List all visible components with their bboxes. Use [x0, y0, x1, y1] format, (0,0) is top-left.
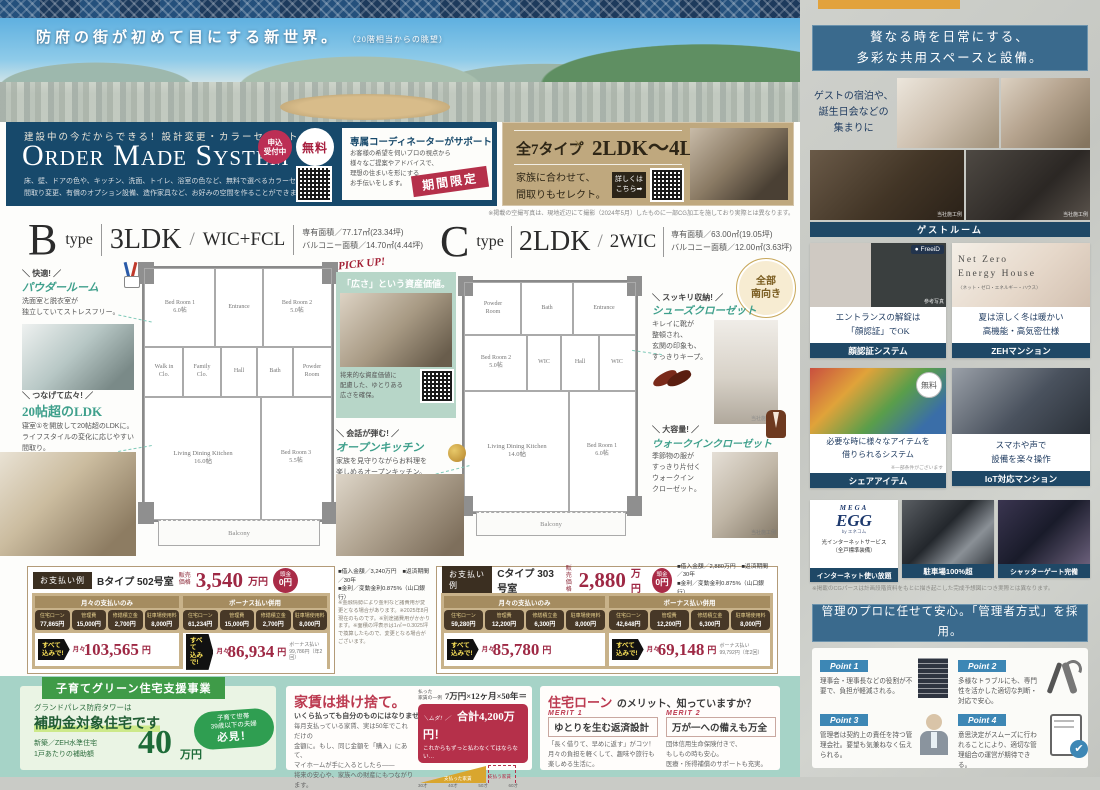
- price-value: 2,880: [579, 570, 626, 591]
- pickup-body: 将来的な資産価値に 配慮した、ゆとりある 広さを確保。: [340, 371, 419, 401]
- powder-body: 洗面室と脱衣室が 独立していてストレスフリー。: [22, 297, 140, 319]
- future-label: 支払う家賃: [488, 774, 511, 780]
- iot-caption: IoT対応マンション: [952, 471, 1090, 486]
- total-value: 103,565: [84, 641, 139, 658]
- all-in-chip: すべて 込みで!: [612, 639, 644, 660]
- type-lineup-box: 全7タイプ × 2LDK〜4LDK 家族に合わせて、 間取りもセレクト。 詳しく…: [502, 122, 794, 206]
- btype-sep: /: [189, 229, 194, 251]
- toothbrush-icon: [124, 262, 144, 288]
- free-badge: 無料: [296, 128, 334, 166]
- all-in-chip: すべて 込みで!: [38, 639, 70, 660]
- chip-value: 6,300円: [691, 619, 730, 628]
- room-bath: Bath: [256, 346, 294, 398]
- share-item-text: 必要な時に様々なアイテムを 借りられるシステム: [810, 434, 946, 464]
- total-yen: 円: [277, 645, 286, 658]
- payment-col-monthly: 月々の支払いのみ 住宅ローン77,865円 管理費15,000円 修繕積立金2,…: [35, 596, 179, 666]
- chip-value: 6,300円: [526, 619, 565, 628]
- divider: [663, 227, 664, 257]
- loan-merit-box: 住宅ローン のメリット、知っていますか？ MERIT 1 ゆとりを生む返済設計 …: [540, 686, 780, 770]
- cg-disclaimer: ※掲載のCGパースは計画段階資料をもとに描き起こした完成予想図につき実際とは異な…: [812, 584, 1088, 592]
- photo-note: 参考写真: [924, 298, 944, 305]
- cost-chip: 修繕積立金2,700円: [108, 610, 143, 630]
- divider: [293, 225, 294, 255]
- ldk-annotation: ＼ つなげて広々! ／ 20帖超のLDK 寝室①を開放して20帖超のLDKに。 …: [22, 390, 150, 455]
- tick: 40才: [448, 783, 458, 789]
- cost-chip: 住宅ローン61,234円: [183, 610, 218, 630]
- order-made-section: 建設中の今だからできる！設計変更・カラーセレクト Order Made Syst…: [6, 122, 497, 206]
- price-label: 販売 価格: [179, 573, 191, 587]
- parking-caption: 駐車場100%超: [902, 564, 994, 578]
- payment-box-b: お支払い例 Bタイプ 502号室 販売 価格 3,540 万円 頭金 0円 月々…: [27, 566, 335, 674]
- share-item-caption: シェアアイテム: [810, 473, 946, 488]
- no-downpayment-badge: 頭金 0円: [652, 568, 672, 593]
- total-yen: 円: [542, 643, 551, 656]
- megaegg-logo: MEGA EGG by エネコム 光インターネットサービス （全戸標準装備）: [810, 500, 898, 568]
- face-id-text: エントランスの解錠は 「顔認証」でOK: [810, 307, 946, 343]
- pillar: [138, 502, 154, 524]
- room-fcl: Family Clo.: [182, 346, 222, 398]
- rent-box: 家賃は掛け捨て。 いくら払っても自分のものにはなりません。 毎月支払っている家賃…: [286, 686, 532, 770]
- cost-chip: 駐車場使用料8,000円: [566, 610, 605, 630]
- chip-label: 管理費: [650, 612, 689, 619]
- payment-col-bonus: ボーナス払い併用 住宅ローン61,234円 管理費15,000円 修繕積立金2,…: [183, 596, 327, 666]
- all-in-chip: すべて 込みで!: [447, 639, 479, 660]
- subsidy-box: 子育てグリーン住宅支援事業 グランドパレス防府タワーは 補助金対象住宅です 新築…: [20, 686, 276, 770]
- bubble-em: 必見！: [217, 729, 252, 745]
- guest-photo-bedroom: 当社施工例: [966, 150, 1090, 220]
- kitchen-flag: ＼ 会話が弾む! ／: [336, 428, 466, 439]
- rent-example: 払った 家賃の一例 7万円×12ヶ月×50年＝ ＼ムダ！／ 合計4,200万円！…: [418, 690, 528, 788]
- point-4: Point 4 意思決定がスムーズに行われることにより、適切な管理組合の運営が期…: [958, 710, 1042, 771]
- balcony: Balcony: [158, 520, 320, 546]
- ldk-flag: ＼ つなげて広々! ／: [22, 390, 150, 401]
- share-item-photo: 無料: [810, 368, 946, 434]
- cost-chip: 管理費15,000円: [72, 610, 107, 630]
- chip-value: 12,200円: [650, 619, 689, 628]
- payment-body-b: 月々の支払いのみ 住宅ローン77,865円 管理費15,000円 修繕積立金2,…: [32, 593, 330, 669]
- chip-label: 住宅ローン: [183, 612, 218, 619]
- guest-lead: ゲストの宿泊や、 誕生日会などの 集まりに: [810, 78, 897, 148]
- gate-card: シャッターゲート完備: [998, 500, 1090, 578]
- school-field: [280, 94, 450, 120]
- shoes-closet-photo: 当社施工例: [714, 320, 778, 424]
- room-hall: Hall: [220, 346, 258, 398]
- tick: 30才: [418, 783, 428, 789]
- ldk-title: 20帖超のLDK: [22, 401, 150, 420]
- point-2: Point 2 多様なトラブルにも、専門性を活かした適切な判断・対応で安心。: [958, 656, 1042, 707]
- chip-value: 12,200円: [485, 619, 524, 628]
- shoes-body: キレイに靴が 整頓され、 玄関の印象も、 すっきりキープ。: [652, 320, 710, 363]
- point4-body: 意思決定がスムーズに行われることにより、適切な管理組合の運営が期待できる。: [958, 731, 1042, 771]
- photo-disclaimer: ※掲載の空撮写真は、現地近辺にて撮影（2024年5月）したものに一部CG加工を施…: [430, 208, 794, 217]
- payment-box-c: お支払い例 Cタイプ 303号室 販売 価格 2,880 万円 頭金 0円 ■借…: [436, 566, 778, 674]
- total-value: 85,780: [493, 641, 540, 658]
- btype-header: B type 3LDK / WIC+FCL 専有面積／77.17㎡(23.34坪…: [28, 220, 423, 260]
- ldk-photo: [0, 452, 136, 556]
- chip-value: 61,234円: [183, 619, 218, 628]
- powder-title: パウダールーム: [22, 279, 140, 295]
- chip-value: 2,700円: [108, 619, 143, 628]
- cost-chip: 住宅ローン59,280円: [444, 610, 483, 630]
- room-hall: Hall: [560, 334, 600, 392]
- shoes-icon: [652, 369, 692, 391]
- ctype-header: C type 2LDK / 2WIC 専有面積／63.00㎡(19.05坪) バ…: [440, 222, 792, 262]
- omd-body: 床、壁、ドアの色や、キッチン、洗面、トイレ、浴室の色など、無料で選べるカラーセレ…: [24, 176, 324, 200]
- pickup-box: 「広さ」という資産価値。 将来的な資産価値に 配慮した、ゆとりある 広さを確保。: [336, 272, 456, 418]
- per-month: 月々: [482, 646, 490, 653]
- photo-note: 当社施工例: [751, 529, 776, 536]
- subsidy-amount: 40: [138, 726, 172, 760]
- per-month: 月々: [216, 648, 224, 655]
- point2-label: Point 2: [958, 660, 1006, 672]
- face-id-card: ● FreeiD 参考写真 エントランスの解錠は 「顔認証」でOK 顔認証システ…: [810, 243, 946, 358]
- shared-facilities-header: 贅なる時を日常にする、 多彩な共用スペースと設備。: [812, 25, 1088, 71]
- photo-note: 当社施工例: [937, 211, 962, 218]
- point-3: Point 3 管理者は契約上の責任を持つ管理会社。要望も気兼ねなく伝えられる。: [820, 710, 916, 761]
- chip-label: 住宅ローン: [609, 612, 648, 619]
- room-entrance: Entrance: [214, 268, 264, 348]
- zeh-logo: Net Zero Energy House: [958, 253, 1036, 282]
- hero-headline-note: （20階相当からの眺望）: [348, 35, 448, 44]
- type-caption: 家族に合わせて、 間取りもセレクト。: [516, 170, 606, 204]
- chip-label: 管理費: [72, 612, 107, 619]
- ctype-area2: バルコニー面積／12.00㎡(3.63坪): [671, 243, 792, 252]
- guest-photo-party: [1001, 78, 1090, 148]
- point3-body: 管理者は契約上の責任を持つ管理会社。要望も気兼ねなく伝えられる。: [820, 731, 916, 761]
- parking-card: 駐車場100%超: [902, 500, 994, 578]
- chip-value: 15,000円: [72, 619, 107, 628]
- face-id-photo: ● FreeiD 参考写真: [810, 243, 946, 307]
- price-unit: 万円: [248, 573, 268, 588]
- pillar: [627, 496, 642, 516]
- chip-label: 修繕積立金: [256, 612, 291, 619]
- gold-rule: [514, 130, 682, 131]
- merit2-title: 万が一への備えも万全: [666, 717, 776, 737]
- building-icon: [918, 658, 948, 698]
- cost-chip: 駐車場使用料8,000円: [731, 610, 770, 630]
- chip-label: 駐車場使用料: [293, 612, 328, 619]
- shoes-title: シューズクローゼット: [652, 303, 797, 318]
- subsidy-banner: 子育てグリーン住宅支援事業: [42, 677, 225, 699]
- col-header: ボーナス払い併用: [183, 596, 327, 608]
- management-box: Point 1 理事会・理事長などの役割が不要で、負担が軽減される。 Point…: [812, 648, 1088, 768]
- zeh-caption: ZEHマンション: [952, 343, 1090, 358]
- no-downpayment-badge: 頭金 0円: [273, 568, 298, 593]
- total-value: 69,148: [658, 641, 705, 658]
- subsidy-line1: グランドパレス防府タワーは: [34, 702, 132, 713]
- ctype-word: type: [476, 233, 504, 251]
- payment-unit: Cタイプ 303号室: [497, 565, 559, 595]
- merit-1: MERIT 1 ゆとりを生む返済設計 「長く借りて、早めに返す」がコツ！ 月々の…: [548, 710, 658, 769]
- down-value: 0円: [273, 578, 298, 587]
- merit2-label: MERIT 2: [666, 710, 776, 717]
- subsidy-unit: 万円: [180, 746, 202, 762]
- manager-icon: [918, 714, 950, 758]
- muda-flag: ＼ムダ！／: [423, 716, 451, 722]
- megaegg-egg: EGG: [810, 512, 898, 529]
- all-in-chip: すべて 込みで!: [186, 634, 213, 670]
- example-label: 払った 家賃の一例: [418, 690, 442, 702]
- merit-title-em: 住宅ローン: [548, 695, 612, 710]
- subsidy-spec: 新築／ZEH水準住宅 1戸あたりの補助額: [34, 738, 97, 760]
- panorama-photo: 防府の街が初めて目にする新世界。 （20階相当からの眺望）: [0, 18, 800, 122]
- total-yen: 円: [707, 643, 716, 656]
- pickup-title: 「広さ」という資産価値。: [336, 272, 456, 293]
- chip-label: 住宅ローン: [444, 612, 483, 619]
- gold-rule2: [514, 164, 682, 165]
- payment-label: お支払い例: [442, 566, 492, 594]
- chip-value: 77,865円: [35, 619, 70, 628]
- divider: [511, 226, 512, 258]
- pickup-qr-code: [422, 371, 452, 401]
- price-value: 3,540: [196, 570, 243, 591]
- subsidy-bubble: 子育て世帯 39歳以下の夫婦 必見！: [193, 707, 275, 750]
- loan-terms-b: ■借入金額／3,240万円 ■返済期間／30年 ■金利／変動金利0.875%（山…: [338, 568, 432, 603]
- wic-photo: 当社施工例: [712, 452, 778, 538]
- chip-label: 駐車場使用料: [145, 612, 180, 619]
- details-link-button[interactable]: 詳しくは こちら➡: [612, 172, 646, 198]
- chip-value: 2,700円: [256, 619, 291, 628]
- guest-photo-family: [897, 78, 998, 148]
- merit2-body: 団体信用生命保険付きで、 もしもの時も安心。 医療・所得補償のサポートも充実。: [666, 740, 776, 769]
- hero-headline: 防府の街が初めて目にする新世界。 （20階相当からの眺望）: [36, 26, 448, 47]
- tools-icon: [1048, 660, 1082, 698]
- shoes-annotation: ＼ スッキリ収納! ／ シューズクローゼット キレイに靴が 整頓され、 玄関の印…: [652, 292, 797, 424]
- payment-unit: Bタイプ 502号室: [97, 573, 174, 588]
- parking-photo: [902, 500, 994, 564]
- ldk-body: 寝室①を開放して20帖超のLDKに。 ライフスタイルの変化に応じやすい 間取り。: [22, 422, 150, 455]
- kitchen-title: オープンキッチン: [336, 439, 466, 455]
- type-qr-code: [652, 170, 682, 200]
- right-page: 贅なる時を日常にする、 多彩な共用スペースと設備。 ゲストの宿泊や、 誕生日会な…: [800, 0, 1100, 777]
- left-page: 防府の街が初めて目にする新世界。 （20階相当からの眺望） 建設中の今だからでき…: [0, 0, 800, 777]
- ctype-letter: C: [440, 220, 469, 264]
- zeh-photo: Net Zero Energy House 〈ネット・ゼロ・エネルギー・ハウス〉: [952, 243, 1090, 307]
- room-bedroom2: Bed Room 2 5.0帖: [262, 268, 332, 348]
- rent-body: 毎月支払っている家賃、実は50年でこれだけの 金額に。もし、同じ金額を「購入」に…: [294, 722, 414, 790]
- free-badge: 無料: [916, 372, 942, 398]
- guest-room-block: ゲストの宿泊や、 誕生日会などの 集まりに 当社施工例 当社施工例 ゲストルーム: [810, 78, 1090, 237]
- chip-value: 8,000円: [145, 619, 180, 628]
- management-header: 管理のプロに任せて安心。「管理者方式」を採用。: [812, 604, 1088, 642]
- payment-body-c: 月々の支払いのみ 住宅ローン59,280円 管理費12,200円 修繕積立金6,…: [441, 593, 773, 669]
- down-value: 0円: [652, 578, 672, 587]
- merit1-title: ゆとりを生む返済設計: [548, 717, 658, 737]
- omd-title: Order Made System: [22, 139, 289, 173]
- hero-headline-text: 防府の街が初めて目にする新世界。: [36, 30, 340, 46]
- gate-caption: シャッターゲート完備: [998, 564, 1090, 578]
- photo-note: 当社施工例: [1063, 211, 1088, 218]
- room-bedroom2: Bed Room 2 5.0帖: [464, 334, 528, 392]
- freeid-logo: ● FreeiD: [911, 245, 944, 254]
- btype-letter: B: [28, 218, 57, 262]
- chip-label: 管理費: [485, 612, 524, 619]
- chip-label: 住宅ローン: [35, 612, 70, 619]
- btype-word: type: [65, 231, 93, 249]
- point4-label: Point 4: [958, 714, 1006, 726]
- bonus-note: ボーナス払い 99,786円（年2回）: [289, 642, 324, 662]
- interior-photo: [690, 128, 788, 200]
- accepting-badge: 申込 受付中: [258, 130, 292, 164]
- room-bath: Bath: [520, 282, 574, 336]
- face-id-caption: 顔認証システム: [810, 343, 946, 358]
- chip-value: 8,000円: [731, 619, 770, 628]
- megaegg-by: by エネコム: [810, 529, 898, 535]
- point2-body: 多様なトラブルにも、専門性を活かした適切な判断・対応で安心。: [958, 677, 1042, 707]
- chip-label: 管理費: [220, 612, 255, 619]
- cost-chip: 管理費12,200円: [650, 610, 689, 630]
- payment-notes: ※金融情勢により金利など諸費用が変更となる場合があります。※2025年8月現在の…: [338, 600, 430, 672]
- chip-label: 駐車場使用料: [731, 612, 770, 619]
- room-bedroom1: Bed Room 1 6.0帖: [144, 268, 216, 348]
- room-entrance: Entrance: [572, 282, 636, 336]
- iot-photo: [952, 368, 1090, 434]
- room-wic1: WIC: [526, 334, 562, 392]
- ctype-plan: 2LDK: [519, 226, 591, 258]
- kitchen-photo: [336, 474, 464, 556]
- multiply-sign: ×: [574, 136, 583, 154]
- point1-body: 理事会・理事長などの役割が不要で、負担が軽減される。: [820, 677, 916, 697]
- zeh-text: 夏は涼しく冬は暖かい 高機能・高気密仕様: [952, 307, 1090, 343]
- tick: 60才: [508, 783, 518, 789]
- chip-label: 修繕積立金: [108, 612, 143, 619]
- chip-label: 修繕積立金: [526, 612, 565, 619]
- jacket-icon: [763, 410, 789, 440]
- rent-subtitle: いくら払っても自分のものにはなりません。: [294, 711, 433, 721]
- col-header: 月々の支払いのみ: [35, 596, 179, 608]
- rent-chart: 支払った家賃 支払う家賃 30才 40才 50才 60才: [418, 766, 528, 788]
- coordinator-box: 専属コーディネーターがサポート お客様の希望を伺いプロの視点から 様々なご提案や…: [342, 128, 492, 200]
- merit1-label: MERIT 1: [548, 710, 658, 717]
- room-bedroom1: Bed Room 1 6.0帖: [568, 390, 636, 512]
- chip-value: 15,000円: [220, 619, 255, 628]
- rent-title: 家賃は掛け捨て。: [294, 692, 406, 712]
- wic-body: 季節物の服が すっきり片付く ウォークイン クローゼット。: [652, 452, 708, 495]
- share-item-note: ※一部条件がございます: [810, 464, 946, 473]
- col-header: ボーナス払い併用: [609, 596, 770, 608]
- chip-value: 8,000円: [566, 619, 605, 628]
- chip-label: 修繕積立金: [691, 612, 730, 619]
- point1-label: Point 1: [820, 660, 868, 672]
- payment-col-bonus: ボーナス払い併用 住宅ローン42,648円 管理費12,200円 修繕積立金6,…: [609, 596, 770, 666]
- room-ldk: Living Dining Kitchen 16.0帖: [144, 396, 262, 520]
- ctype-floorplan: Powder Room Bath Entrance Bed Room 2 5.0…: [462, 280, 638, 514]
- kettle-icon: [448, 444, 466, 462]
- ctype-opt: 2WIC: [610, 231, 656, 253]
- gate-photo: [998, 500, 1090, 564]
- rent-total-note: これからもずっと払わなくてはならない…: [423, 744, 523, 760]
- per-month: 月々: [647, 646, 655, 653]
- shoes-flag: ＼ スッキリ収納! ／: [652, 292, 797, 303]
- internet-caption: インターネット使い放題: [810, 568, 898, 582]
- total-yen: 円: [142, 643, 151, 656]
- orange-bar: [818, 0, 960, 9]
- decorative-pattern-strip: [0, 0, 800, 18]
- omd-qr-code: [298, 168, 330, 200]
- clipboard-icon: ✔: [1050, 714, 1082, 756]
- btype-areas: 専有面積／77.17㎡(23.34坪) バルコニー面積／14.70㎡(4.44坪…: [302, 227, 423, 253]
- chip-value: 8,000円: [293, 619, 328, 628]
- per-month: 月々: [73, 646, 81, 653]
- point3-label: Point 3: [820, 714, 868, 726]
- merit1-body: 「長く借りて、早めに返す」がコツ！ 月々の負担を軽くして、趣味や旅行も 楽しめる…: [548, 740, 658, 769]
- cost-chip: 住宅ローン42,648円: [609, 610, 648, 630]
- bonus-note: ボーナス払い 99,792円（年2回）: [719, 643, 762, 656]
- btype-plan: 3LDK: [110, 224, 182, 256]
- iot-text: スマホや声で 設備を楽々操作: [952, 434, 1090, 471]
- room-wic2: WIC: [598, 334, 636, 392]
- point-1: Point 1 理事会・理事長などの役割が不要で、負担が軽減される。: [820, 656, 916, 697]
- tick: 50才: [478, 783, 488, 789]
- chip-value: 59,280円: [444, 619, 483, 628]
- cost-chip: 管理費15,000円: [220, 610, 255, 630]
- room-powder: Powder Room: [464, 282, 522, 336]
- payment-label: お支払い例: [33, 572, 92, 589]
- chip-label: 駐車場使用料: [566, 612, 605, 619]
- col-header: 月々の支払いのみ: [444, 596, 605, 608]
- powder-annotation: ＼ 快適! ／ パウダールーム 洗面室と脱衣室が 独立していてストレスフリー。: [22, 268, 140, 390]
- btype-floorplan: Bed Room 1 6.0帖 Entrance Bed Room 2 5.0帖…: [142, 266, 334, 522]
- cost-chip: 駐車場使用料8,000円: [145, 610, 180, 630]
- btype-opt: WIC+FCL: [203, 229, 286, 251]
- btype-area2: バルコニー面積／14.70㎡(4.44坪): [302, 241, 423, 250]
- price-label: 販売 価格: [564, 566, 574, 595]
- cost-chip: 駐車場使用料8,000円: [293, 610, 328, 630]
- ctype-areas: 専有面積／63.00㎡(19.05坪) バルコニー面積／12.00㎡(3.63坪…: [671, 229, 792, 255]
- kitchen-annotation: ＼ 会話が弾む! ／ オープンキッチン 家族を見守りながらお料理を 楽しめるオー…: [336, 428, 466, 479]
- chip-value: 42,648円: [609, 619, 648, 628]
- wic-annotation: ＼ 大容量! ／ ウォークインクローゼット 季節物の服が すっきり片付く ウォー…: [652, 424, 797, 538]
- powder-flag: ＼ 快適! ／: [22, 268, 140, 279]
- guest-caption: ゲストルーム: [810, 222, 1090, 237]
- cost-chip: 修繕積立金6,300円: [526, 610, 565, 630]
- rent-formula: 7万円×12ヶ月×50年＝: [445, 690, 527, 702]
- ctype-sep: /: [597, 231, 602, 253]
- room-ldk: Living Dining Kitchen 14.0帖: [464, 390, 570, 512]
- price-unit: 万円: [631, 565, 647, 595]
- total-value: 86,934: [227, 643, 274, 660]
- payment-col-monthly: 月々の支払いのみ 住宅ローン59,280円 管理費12,200円 修繕積立金6,…: [444, 596, 605, 666]
- share-item-card: 無料 必要な時に様々なアイテムを 借りられるシステム ※一部条件がございます シ…: [810, 368, 946, 488]
- iot-card: スマホや声で 設備を楽々操作 IoT対応マンション: [952, 368, 1090, 486]
- cost-chip: 修繕積立金2,700円: [256, 610, 291, 630]
- cost-chip: 修繕積立金6,300円: [691, 610, 730, 630]
- internet-text: 光インターネットサービス （全戸標準装備）: [810, 539, 898, 555]
- internet-card: MEGA EGG by エネコム 光インターネットサービス （全戸標準装備） イ…: [810, 500, 898, 582]
- cost-chip: 管理費12,200円: [485, 610, 524, 630]
- btype-area1: 専有面積／77.17㎡(23.34坪): [302, 228, 403, 237]
- room-wic: Walk in Clo.: [144, 346, 184, 398]
- cost-chip: 住宅ローン77,865円: [35, 610, 70, 630]
- ctype-area1: 専有面積／63.00㎡(19.05坪): [671, 230, 772, 239]
- zeh-card: Net Zero Energy House 〈ネット・ゼロ・エネルギー・ハウス〉…: [952, 243, 1090, 358]
- room-powder: Powder Room: [292, 346, 332, 398]
- guest-photo-lounge: 当社施工例: [810, 150, 964, 220]
- merit-title-rest: のメリット、知っていますか？: [617, 699, 756, 710]
- balcony: Balcony: [476, 512, 626, 536]
- rent-total-bubble: ＼ムダ！／ 合計4,200万円！ これからもずっと払わなくてはならない…: [418, 704, 528, 763]
- pickup-photo: [340, 293, 452, 367]
- zeh-logo-sub: 〈ネット・ゼロ・エネルギー・ハウス〉: [958, 285, 1041, 291]
- divider: [101, 224, 102, 256]
- merit-2: MERIT 2 万が一への備えも万全 団体信用生命保険付きで、 もしもの時も安心…: [666, 710, 776, 769]
- powder-room-photo: [22, 324, 134, 390]
- coordinator-title: 専属コーディネーターがサポート: [350, 134, 492, 148]
